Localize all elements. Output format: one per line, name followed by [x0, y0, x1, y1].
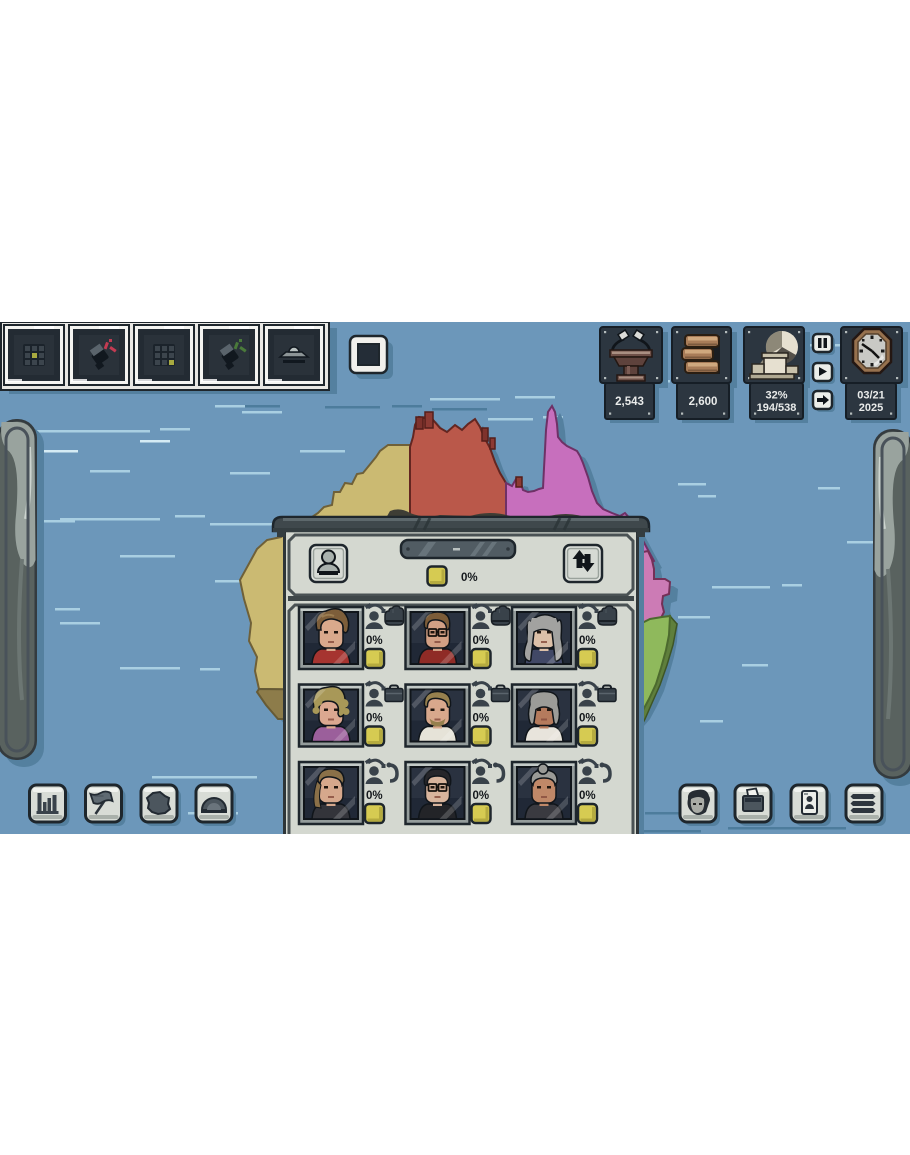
svg-text:0%: 0%	[366, 790, 383, 802]
svg-text:0%: 0%	[461, 572, 478, 584]
svg-text:0%: 0%	[579, 790, 596, 802]
svg-text:0%: 0%	[366, 713, 383, 725]
svg-text:0%: 0%	[473, 635, 490, 647]
svg-text:2,543: 2,543	[615, 396, 644, 408]
svg-text:0%: 0%	[579, 635, 596, 647]
svg-text:2025: 2025	[859, 402, 883, 414]
svg-text:32%: 32%	[765, 390, 787, 402]
svg-text:0%: 0%	[366, 635, 383, 647]
svg-text:03/21: 03/21	[857, 390, 885, 402]
svg-text:2,600: 2,600	[689, 396, 718, 408]
svg-text:0%: 0%	[579, 713, 596, 725]
svg-text:0%: 0%	[473, 790, 490, 802]
svg-text:194/538: 194/538	[757, 402, 797, 414]
svg-text:0%: 0%	[473, 713, 490, 725]
